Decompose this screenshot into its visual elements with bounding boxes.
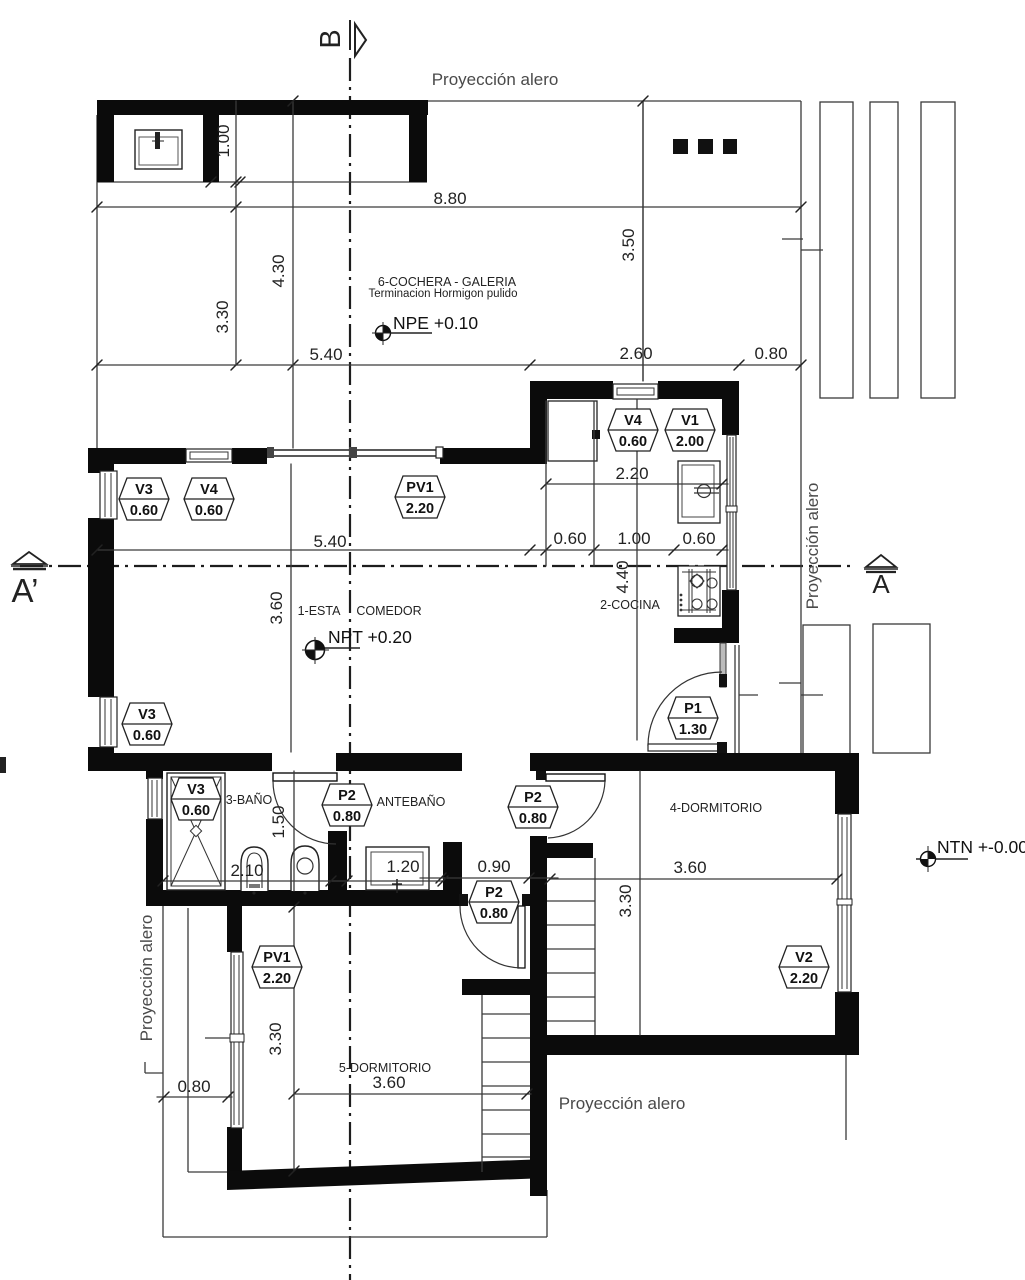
svg-text:3.60: 3.60 bbox=[267, 591, 286, 624]
svg-text:2-COCINA: 2-COCINA bbox=[600, 598, 660, 612]
svg-text:0.80: 0.80 bbox=[754, 344, 787, 363]
svg-text:6-COCHERA - GALERIA: 6-COCHERA - GALERIA bbox=[378, 275, 517, 289]
svg-text:2.20: 2.20 bbox=[263, 971, 291, 987]
svg-text:V2: V2 bbox=[795, 950, 813, 966]
svg-text:V4: V4 bbox=[200, 482, 218, 498]
svg-text:1.50: 1.50 bbox=[269, 805, 288, 838]
svg-text:0.60: 0.60 bbox=[133, 728, 161, 744]
svg-text:A’: A’ bbox=[12, 572, 39, 609]
svg-text:P2: P2 bbox=[485, 885, 503, 901]
svg-text:0.60: 0.60 bbox=[182, 803, 210, 819]
svg-text:3-BAÑO: 3-BAÑO bbox=[226, 793, 273, 807]
svg-text:A: A bbox=[872, 569, 890, 599]
svg-text:1.00: 1.00 bbox=[617, 529, 650, 548]
svg-text:P2: P2 bbox=[338, 788, 356, 804]
svg-text:3.50: 3.50 bbox=[619, 228, 638, 261]
svg-text:PV1: PV1 bbox=[263, 950, 290, 966]
svg-text:NTN +-0.00: NTN +-0.00 bbox=[937, 837, 1025, 857]
svg-text:3.60: 3.60 bbox=[673, 858, 706, 877]
svg-text:NPT +0.20: NPT +0.20 bbox=[328, 627, 412, 647]
svg-text:0.80: 0.80 bbox=[333, 809, 361, 825]
svg-text:0.90: 0.90 bbox=[477, 857, 510, 876]
svg-text:3.60: 3.60 bbox=[372, 1073, 405, 1092]
svg-text:4.40: 4.40 bbox=[613, 560, 632, 593]
svg-text:Proyección alero: Proyección alero bbox=[432, 70, 559, 89]
svg-text:3.30: 3.30 bbox=[213, 300, 232, 333]
svg-text:1.00: 1.00 bbox=[214, 124, 233, 157]
svg-text:1.30: 1.30 bbox=[679, 722, 707, 738]
svg-text:PV1: PV1 bbox=[406, 480, 433, 496]
svg-text:V3: V3 bbox=[135, 482, 153, 498]
svg-text:NPE +0.10: NPE +0.10 bbox=[393, 313, 478, 333]
svg-text:P2: P2 bbox=[524, 790, 542, 806]
svg-text:3.30: 3.30 bbox=[266, 1022, 285, 1055]
svg-text:ANTEBAÑO: ANTEBAÑO bbox=[377, 795, 446, 809]
svg-text:COMEDOR: COMEDOR bbox=[356, 604, 421, 618]
svg-text:0.80: 0.80 bbox=[480, 906, 508, 922]
svg-text:Proyección alero: Proyección alero bbox=[559, 1094, 686, 1113]
svg-text:0.60: 0.60 bbox=[553, 529, 586, 548]
svg-text:4-DORMITORIO: 4-DORMITORIO bbox=[670, 801, 762, 815]
svg-text:2.60: 2.60 bbox=[619, 344, 652, 363]
svg-text:2.10: 2.10 bbox=[230, 861, 263, 880]
svg-text:5.40: 5.40 bbox=[313, 532, 346, 551]
svg-text:2.20: 2.20 bbox=[406, 501, 434, 517]
svg-text:0.80: 0.80 bbox=[519, 811, 547, 827]
svg-text:2.00: 2.00 bbox=[676, 434, 704, 450]
svg-text:V3: V3 bbox=[187, 782, 205, 798]
svg-text:0.60: 0.60 bbox=[130, 503, 158, 519]
svg-text:V3: V3 bbox=[138, 707, 156, 723]
svg-text:Terminacion Hormigon pulido: Terminacion Hormigon pulido bbox=[369, 288, 518, 300]
svg-text:1.20: 1.20 bbox=[386, 857, 419, 876]
svg-text:Proyección alero: Proyección alero bbox=[137, 915, 156, 1042]
svg-text:0.80: 0.80 bbox=[177, 1077, 210, 1096]
svg-text:4.30: 4.30 bbox=[269, 254, 288, 287]
svg-text:V4: V4 bbox=[624, 413, 642, 429]
svg-text:8.80: 8.80 bbox=[433, 189, 466, 208]
svg-text:Proyección alero: Proyección alero bbox=[803, 483, 822, 610]
svg-text:0.60: 0.60 bbox=[619, 434, 647, 450]
svg-text:V1: V1 bbox=[681, 413, 699, 429]
svg-text:5.40: 5.40 bbox=[309, 345, 342, 364]
svg-text:P1: P1 bbox=[684, 701, 702, 717]
svg-text:B: B bbox=[315, 29, 347, 48]
svg-text:0.60: 0.60 bbox=[195, 503, 223, 519]
svg-text:0.60: 0.60 bbox=[682, 529, 715, 548]
svg-text:1-ESTA: 1-ESTA bbox=[298, 604, 341, 618]
svg-text:2.20: 2.20 bbox=[615, 464, 648, 483]
svg-text:2.20: 2.20 bbox=[790, 971, 818, 987]
svg-text:3.30: 3.30 bbox=[616, 884, 635, 917]
